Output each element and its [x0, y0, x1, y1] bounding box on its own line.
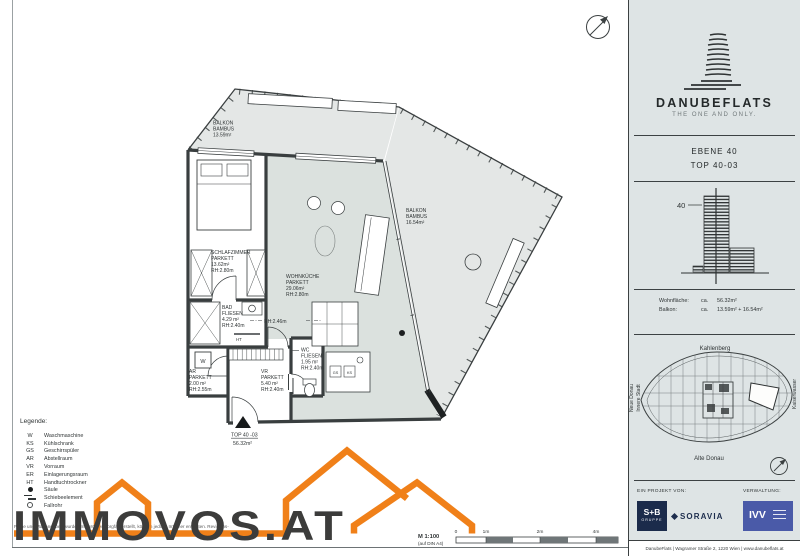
area-row-wohnflaeche: Wohnfläche: ca. 56.32m² [659, 298, 796, 304]
svg-text:RH:2.55m: RH:2.55m [189, 387, 212, 393]
pouf-2 [332, 202, 345, 215]
bed [197, 160, 251, 230]
washer-letter: W [200, 359, 206, 365]
site-compass-icon [771, 458, 788, 475]
ks-label: KS [347, 371, 353, 375]
site-key-plan: Kahlenberg Neue Donau Innere Stadt Kaise… [629, 338, 800, 481]
divider [634, 289, 795, 290]
wohnkueche-label: WOHNKÜCHE [286, 273, 320, 280]
washing-machine: W [195, 352, 211, 368]
soravia-logo: SORAVIA [672, 512, 724, 521]
floor-marker: 40 [677, 201, 685, 210]
kitchen-island [312, 302, 358, 346]
svg-text:13.59m²: 13.59m² [213, 133, 232, 139]
north-compass-icon [587, 16, 610, 39]
management-label: VERWALTUNG: [743, 489, 781, 494]
svg-text:RH:2.40m: RH:2.40m [261, 387, 284, 393]
immovos-wordmark: IMMOVOS.AT [13, 504, 346, 548]
danubeflats-tower-icon [629, 14, 800, 94]
svg-text:RH:2.80m: RH:2.80m [211, 268, 234, 274]
divider [634, 135, 795, 136]
sidebar: DANUBEFLATS THE ONE AND ONLY. EBENE 40 T… [628, 0, 800, 556]
unit-top-number: TOP 40-03 [629, 161, 800, 170]
pouf-1 [308, 197, 321, 210]
shower [190, 302, 220, 344]
site-south-label: Alte Donau [694, 456, 724, 462]
svg-text:Neue Donau: Neue Donau [629, 384, 635, 412]
svg-text:4m: 4m [593, 529, 600, 535]
divider [634, 181, 795, 182]
site-north-label: Kahlenberg [700, 346, 731, 352]
project-label: EIN PROJEKT VON: [637, 489, 686, 494]
svg-text:Kaiserwasser: Kaiserwasser [792, 379, 798, 409]
svg-text:RH:2.46m: RH:2.46m [264, 319, 287, 325]
tower-elevation: 40 [629, 186, 800, 288]
svg-text:Innere Stadt: Innere Stadt [636, 384, 642, 412]
svg-text:2m: 2m [537, 529, 544, 535]
divider [634, 334, 795, 335]
hall-wardrobe [229, 349, 283, 360]
svg-text:RH:2.40m: RH:2.40m [222, 323, 245, 329]
svg-text:RH:2.80m: RH:2.80m [286, 292, 309, 298]
svg-text:16.54m²: 16.54m² [406, 220, 425, 226]
ivv-logo: IVV [743, 501, 793, 531]
brand-tagline: THE ONE AND ONLY. [629, 112, 800, 118]
address-bar: DanubeFlats | Wagramer Straße 2, 1220 Wi… [629, 540, 800, 556]
ht-label: HT [236, 337, 242, 342]
kitchen-cabinets: GS KS [326, 352, 370, 392]
site-west-label: Neue Donau Innere Stadt [629, 384, 642, 412]
svg-text:RH:2.40m: RH:2.40m [301, 366, 324, 372]
site-east-label: Kaiserwasser [792, 379, 798, 409]
area-summary: Wohnfläche: ca. 56.32m² Balkon: ca. 13.5… [659, 298, 796, 315]
unit-level: EBENE 40 [629, 147, 800, 156]
saeule-column [399, 330, 405, 336]
gs-label: GS [333, 371, 339, 375]
washbasin [242, 302, 262, 315]
soravia-mark-icon [671, 513, 678, 520]
divider [634, 480, 795, 481]
area-row-balkon: Balkon: ca. 13.59m² + 16.54m² [659, 307, 796, 313]
brand-wordmark: DANUBEFLATS [629, 96, 800, 110]
sb-gruppe-logo: S+B GRUPPE [637, 501, 667, 531]
